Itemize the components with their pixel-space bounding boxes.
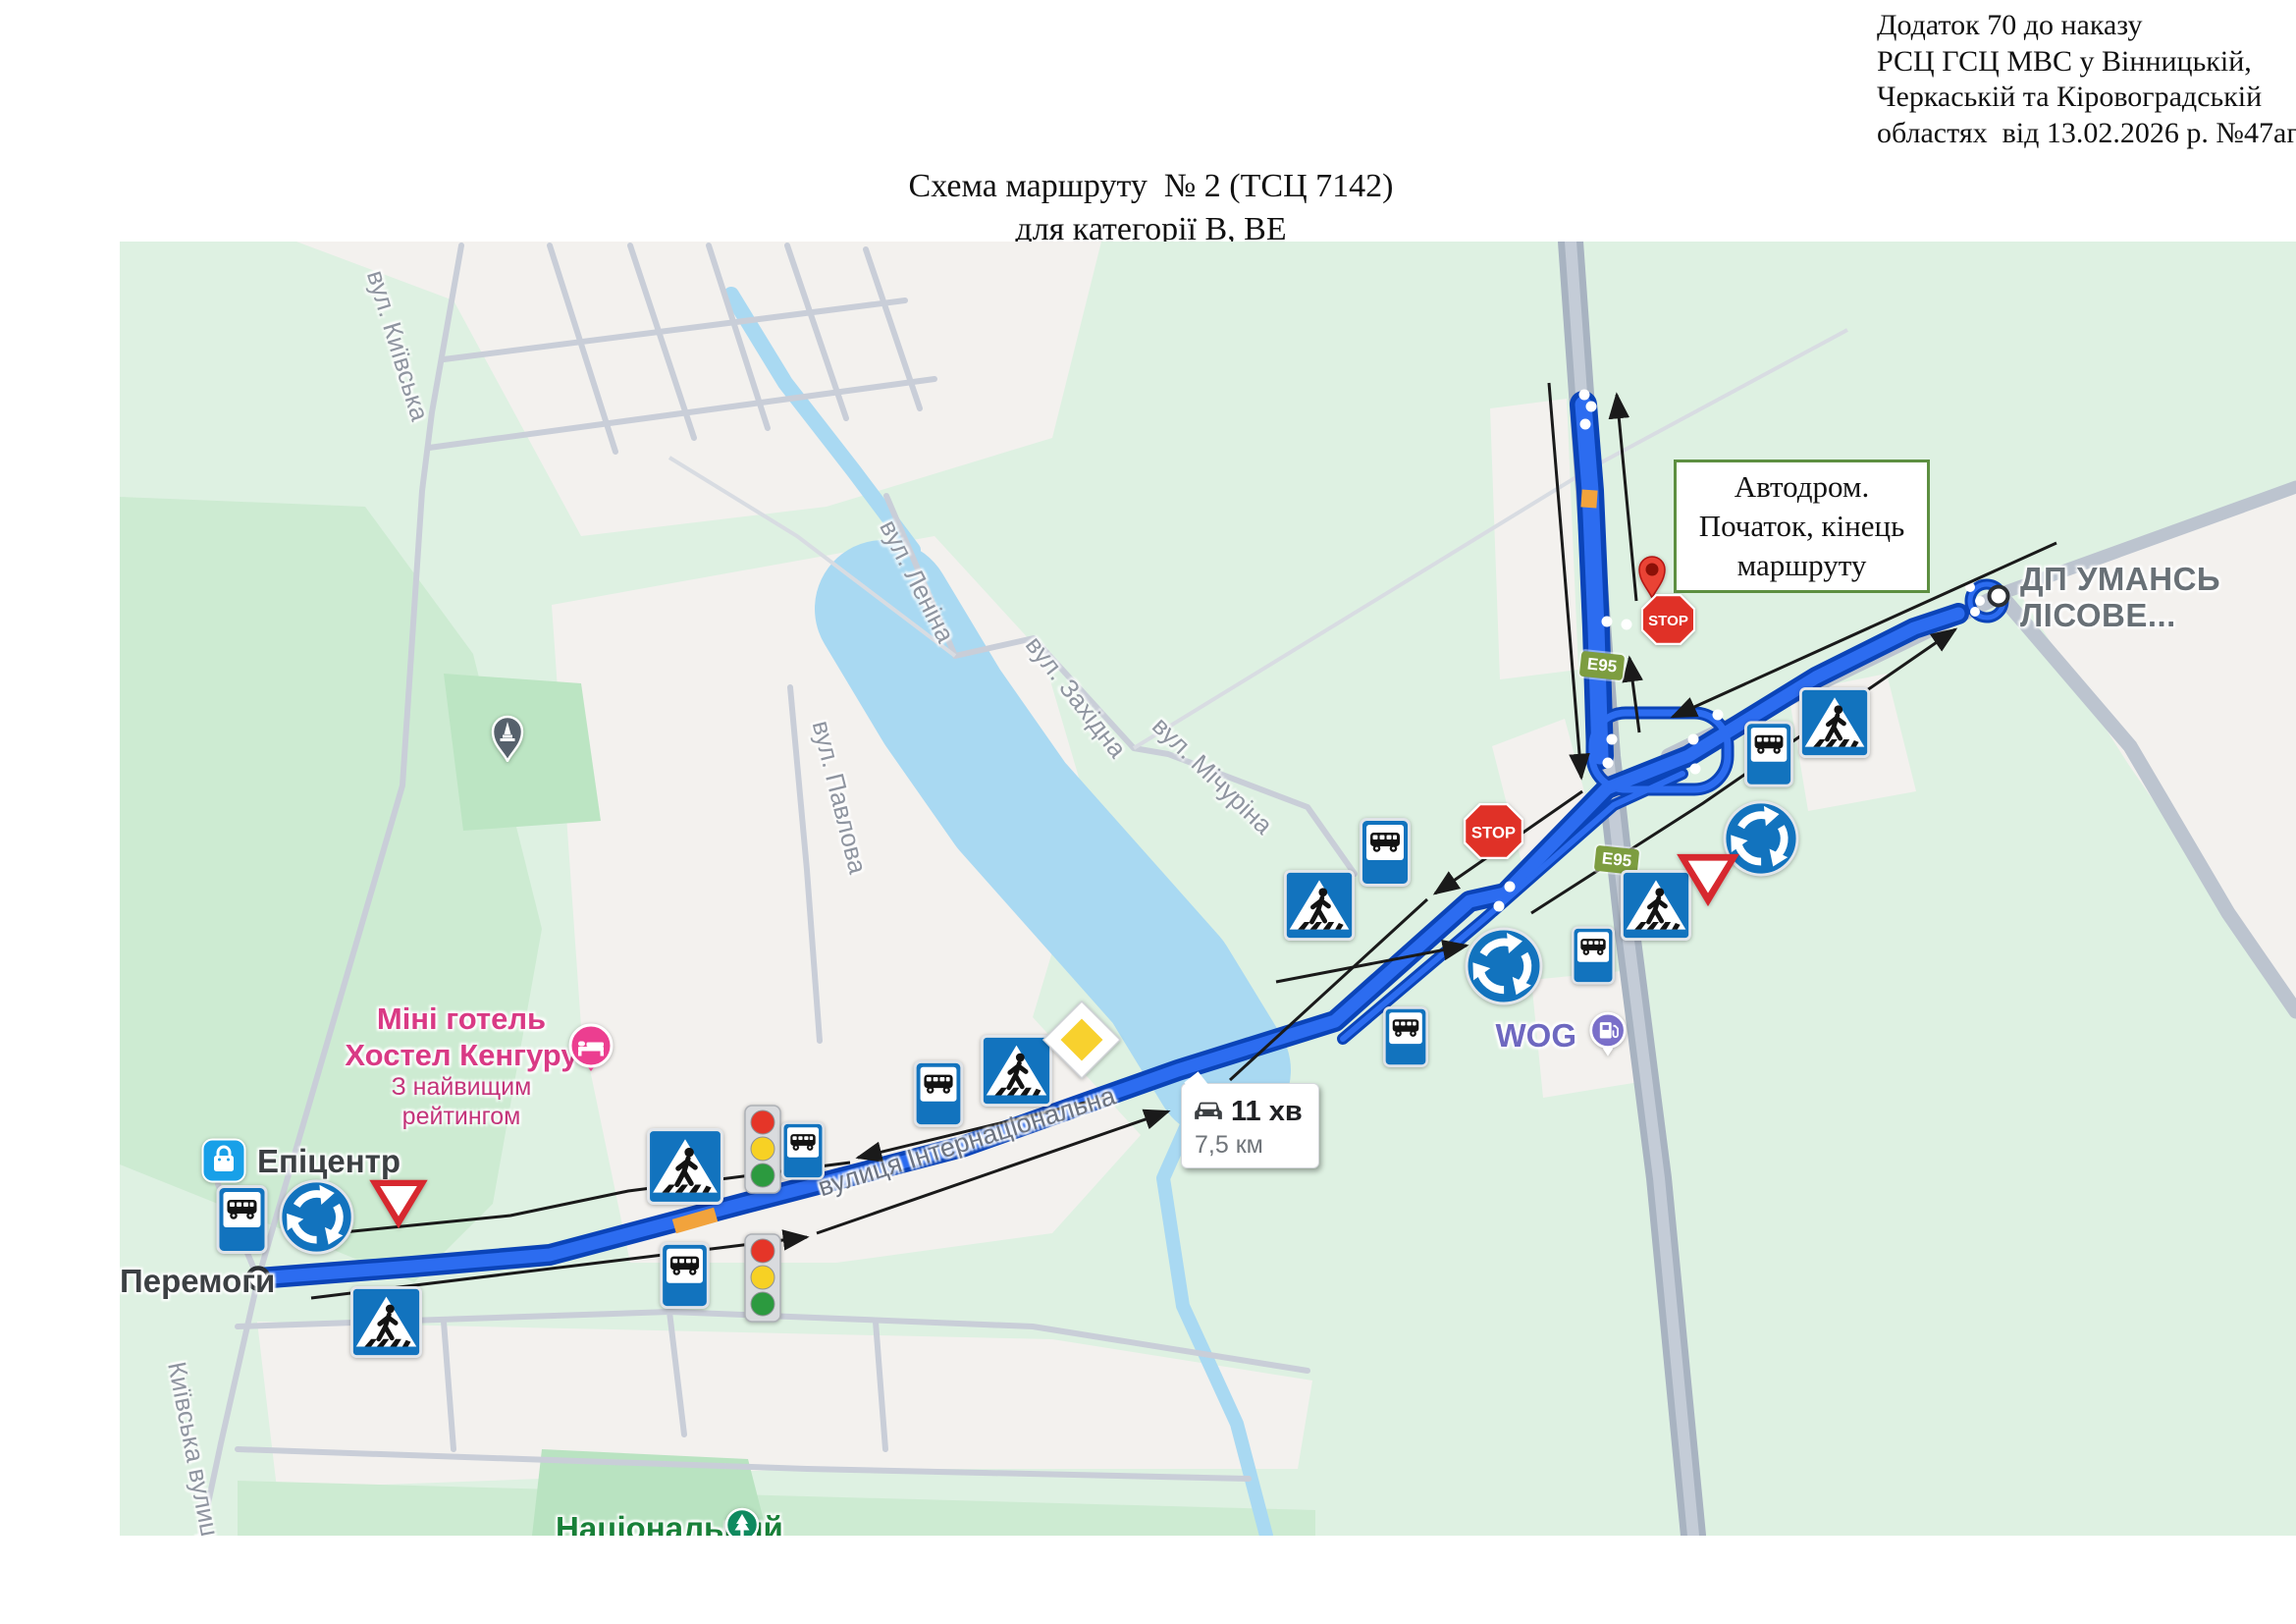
title-line-1: Схема маршруту № 2 (ТСЦ 7142) xyxy=(687,165,1615,208)
bus-stop-sign xyxy=(216,1185,268,1254)
autodrome-label-box: Автодром. Початок, кінець маршруту xyxy=(1674,460,1930,593)
route-start-pin xyxy=(1635,554,1669,599)
roundabout-sign xyxy=(1465,927,1543,1005)
e95-badge-text: E95 xyxy=(1586,654,1618,677)
hotel-line2: Хостел Кенгуру xyxy=(334,1038,589,1074)
pedestrian-crossing-sign xyxy=(647,1128,723,1205)
map-canvas xyxy=(120,242,2296,1536)
route-map: вул. Київська вул. Леніна вул. Західна в… xyxy=(120,242,2296,1536)
stop-sign: STOP xyxy=(1464,803,1523,859)
stop-sign-text: STOP xyxy=(1648,613,1688,629)
hotel-poi-icon xyxy=(566,1023,615,1072)
end-point-marker xyxy=(1990,587,2008,606)
poi-label-wog: WOG xyxy=(1467,1017,1576,1055)
annotation-line: областях від 13.02.2026 р. №47аг xyxy=(1877,116,2296,152)
dp-uman-line1: ДП УМАНСЬ xyxy=(2020,562,2220,598)
monument-poi-icon xyxy=(488,715,527,762)
traffic-light xyxy=(743,1104,782,1195)
route-info-bubble: 11 хв 7,5 км xyxy=(1181,1083,1319,1168)
bus-stop-sign xyxy=(1572,921,1615,990)
epicentr-poi-icon xyxy=(201,1138,246,1183)
pedestrian-crossing-sign xyxy=(350,1286,422,1358)
route-scheme-page: Додаток 70 до наказу РСЦ ГСЦ МВС у Вінни… xyxy=(0,0,2296,1624)
yield-sign xyxy=(1674,851,1742,908)
park-poi-icon xyxy=(724,1507,760,1536)
pedestrian-crossing-sign xyxy=(1284,870,1355,941)
stop-sign: STOP xyxy=(1641,594,1695,645)
route-distance: 7,5 км xyxy=(1195,1131,1263,1160)
hotel-line3: З найвищим рейтингом xyxy=(334,1073,589,1131)
autodrome-line2: Початок, кінець xyxy=(1699,507,1905,546)
pedestrian-crossing-sign xyxy=(1799,687,1870,758)
fuel-station-poi-icon xyxy=(1588,1009,1628,1058)
annotation-line: Додаток 70 до наказу xyxy=(1877,8,2296,44)
poi-label-epicentr: Епіцентр xyxy=(257,1143,400,1180)
page-title: Схема маршруту № 2 (ТСЦ 7142) для катего… xyxy=(687,165,1615,250)
priority-road-sign xyxy=(1041,1000,1122,1080)
car-icon xyxy=(1194,1100,1223,1125)
route-duration: 11 хв xyxy=(1231,1096,1303,1128)
autodrome-line1: Автодром. xyxy=(1699,467,1905,507)
bus-stop-sign xyxy=(660,1242,710,1309)
annotation-line: Черкаській та Кіровоградській xyxy=(1877,80,2296,116)
hotel-line1: Міні готель xyxy=(334,1001,589,1038)
yield-sign xyxy=(367,1177,430,1230)
roundabout-sign xyxy=(279,1179,354,1255)
bus-stop-sign xyxy=(781,1116,825,1185)
bus-stop-sign xyxy=(1360,818,1411,887)
stop-sign-text: STOP xyxy=(1471,823,1516,841)
bus-stop-sign xyxy=(1744,721,1793,787)
bus-stop-sign xyxy=(1383,1003,1428,1070)
traffic-light xyxy=(743,1232,782,1324)
document-annotation: Додаток 70 до наказу РСЦ ГСЦ МВС у Вінни… xyxy=(1877,8,2296,151)
bus-stop-sign xyxy=(913,1060,964,1127)
poi-label-peremohy: Перемоги xyxy=(120,1263,240,1300)
poi-label-dp-uman: ДП УМАНСЬ ЛІСОВЕ... xyxy=(2020,562,2220,634)
annotation-line: РСЦ ГСЦ МВС у Вінницькій, xyxy=(1877,44,2296,81)
e95-badge-text: E95 xyxy=(1601,848,1632,871)
autodrome-line3: маршруту xyxy=(1699,546,1905,585)
poi-label-hotel: Міні готель Хостел Кенгуру З найвищим ре… xyxy=(334,1001,589,1131)
e95-road-badge: E95 xyxy=(1579,651,1625,680)
dp-uman-line2: ЛІСОВЕ... xyxy=(2020,598,2220,634)
